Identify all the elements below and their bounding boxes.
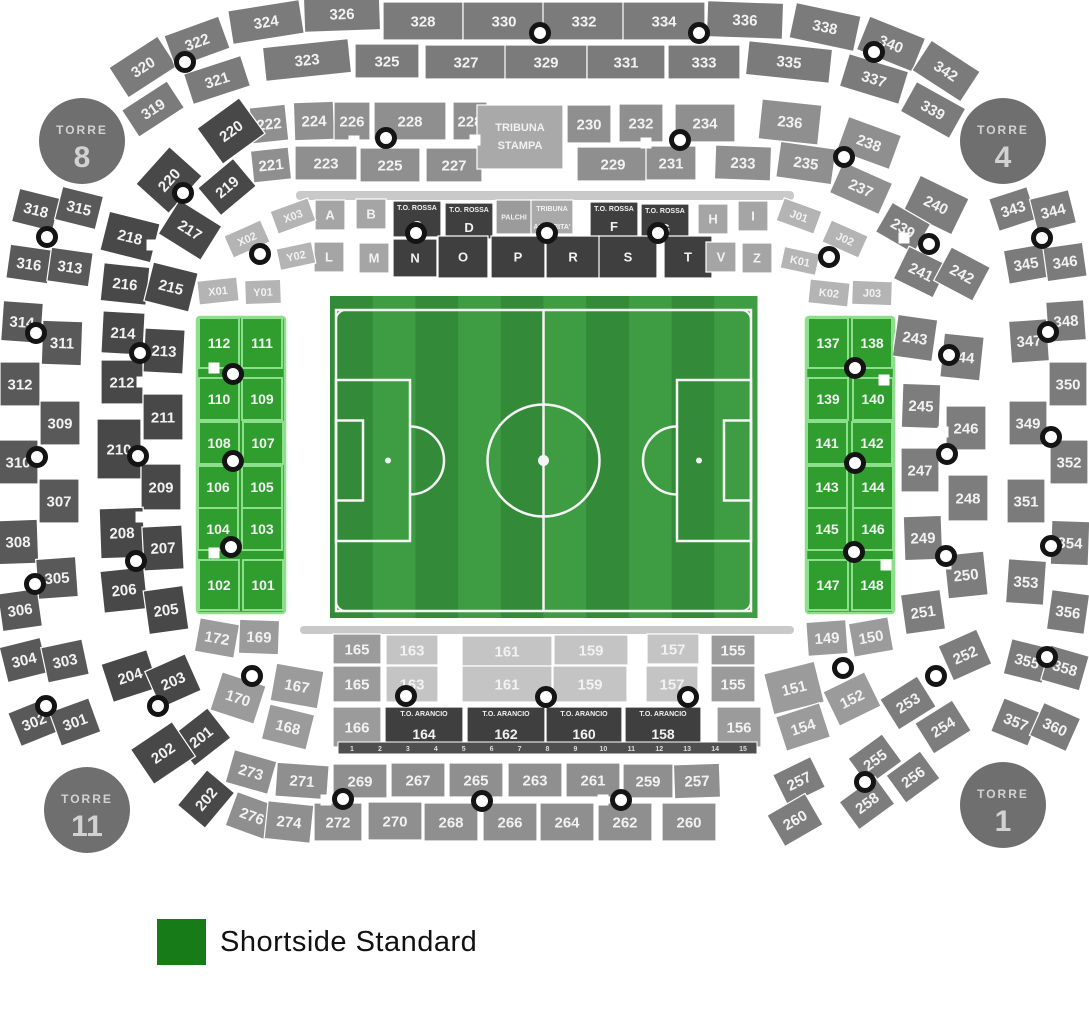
section-163: 163 [386, 635, 438, 665]
gate-marker-icon[interactable] [408, 225, 425, 242]
seatmap-page: 3203223243263283303323343363383403423193… [0, 0, 1089, 1032]
gate-marker-icon[interactable] [38, 698, 55, 715]
section-label: 257 [684, 773, 710, 791]
gate-marker-icon[interactable] [132, 345, 149, 362]
section-346: 346 [1043, 242, 1087, 281]
section-k02: K02 [808, 279, 850, 307]
section-264: 264 [540, 803, 594, 841]
seat-row-number: 6 [490, 746, 494, 753]
section-label: 105 [250, 479, 274, 495]
section-label: O [458, 250, 468, 265]
section-i: I [738, 201, 768, 231]
section-label: 148 [860, 577, 884, 593]
section-167: 167 [270, 663, 324, 709]
section-343: 343 [989, 187, 1038, 232]
section-label: 155 [720, 676, 745, 693]
section-label: 259 [635, 773, 660, 790]
legend: Shortside Standard [157, 919, 477, 965]
section-333: 333 [668, 45, 740, 79]
section-101[interactable]: 101 [243, 560, 283, 610]
section-label: 309 [47, 415, 72, 432]
torre-4: TORRE4 [960, 98, 1046, 184]
section-label: 248 [955, 490, 980, 507]
gate-icon [940, 290, 951, 301]
section-label: 225 [377, 157, 402, 174]
section-label: 346 [1052, 253, 1079, 273]
seat-row-number: 4 [434, 746, 438, 753]
section-304: 304 [0, 637, 49, 682]
gate-marker-icon[interactable] [150, 698, 167, 715]
section-label: 268 [438, 814, 463, 831]
legend-label: Shortside Standard [220, 926, 477, 959]
section-label: 306 [7, 601, 34, 621]
torre-number: 11 [71, 810, 103, 843]
section-j03: J03 [852, 280, 893, 305]
section-sublabel: T.O. ARANCIO [482, 711, 530, 718]
section-157: 157 [647, 634, 699, 664]
section-s: S [599, 236, 657, 278]
seat-row-number: 7 [518, 746, 522, 753]
section-label: 249 [910, 530, 936, 548]
section-label: 353 [1013, 573, 1039, 592]
gate-marker-icon[interactable] [921, 236, 938, 253]
gate-marker-icon[interactable] [128, 553, 145, 570]
gate-marker-icon[interactable] [821, 249, 838, 266]
gate-marker-icon[interactable] [650, 225, 667, 242]
section-332: 332 [543, 2, 625, 40]
section-206: 206 [100, 567, 148, 613]
walkway-band [300, 626, 794, 634]
gate-marker-icon[interactable] [252, 246, 269, 263]
section-label: 323 [294, 51, 321, 71]
gate-marker-icon[interactable] [1034, 230, 1051, 247]
seat-row-number: 5 [462, 746, 466, 753]
section-159: 159 [553, 666, 627, 702]
section-l: L [314, 242, 344, 272]
section-162: T.O. ARANCIO162 [467, 707, 545, 747]
gate-marker-icon[interactable] [847, 360, 864, 377]
section-label: 158 [651, 726, 675, 742]
section-266: 266 [483, 803, 537, 841]
section-sublabel: TRIBUNA [495, 122, 545, 134]
section-label: 103 [250, 521, 274, 537]
section-label: 108 [207, 435, 231, 451]
section-label: 205 [153, 601, 180, 621]
section-label: 233 [730, 155, 756, 173]
section-106[interactable]: 106 [198, 466, 238, 508]
section-label: 156 [726, 719, 751, 736]
section-315: 315 [55, 186, 104, 229]
gate-marker-icon[interactable] [398, 688, 415, 705]
section-label: 271 [289, 772, 315, 791]
section-155: 155 [711, 666, 755, 702]
section-326: 326 [303, 0, 380, 32]
section-147[interactable]: 147 [808, 560, 848, 610]
section-stampa: TRIBUNASTAMPA [477, 105, 563, 169]
section-219: 219 [198, 158, 256, 215]
section-b: B [356, 199, 386, 229]
section-344: 344 [1029, 190, 1076, 233]
section-224: 224 [293, 101, 334, 140]
section-139[interactable]: 139 [808, 378, 848, 420]
section-label: 149 [814, 629, 840, 648]
section-237: 237 [829, 161, 892, 214]
section-label: 209 [148, 479, 173, 496]
section-label: 250 [953, 566, 980, 586]
section-label: 307 [46, 493, 71, 510]
section-353: 353 [1006, 559, 1047, 606]
section-label: 144 [861, 479, 885, 495]
section-label: 163 [399, 642, 424, 659]
section-label: 138 [860, 335, 884, 351]
section-label: L [325, 250, 333, 265]
section-label: 274 [276, 813, 303, 833]
section-168: 168 [261, 704, 314, 750]
section-label: 234 [692, 115, 718, 132]
torre-word: TORRE [61, 792, 113, 806]
section-164: T.O. ARANCIO164 [385, 707, 463, 747]
section-label: 336 [732, 12, 758, 30]
gate-marker-icon[interactable] [691, 25, 708, 42]
seat-row-number: 9 [573, 746, 577, 753]
section-105[interactable]: 105 [242, 466, 282, 508]
section-327: 327 [425, 45, 507, 79]
section-label: R [568, 250, 578, 265]
section-label: 207 [150, 540, 176, 558]
section-z: Z [742, 243, 772, 273]
section-218: 218 [100, 211, 160, 262]
section-sublabel: T.O. ROSSA [645, 208, 685, 215]
section-label: 260 [676, 814, 701, 831]
torre-8: TORRE8 [39, 98, 125, 184]
section-label: 269 [347, 773, 372, 790]
section-143[interactable]: 143 [807, 466, 847, 508]
section-label: 137 [816, 335, 840, 351]
section-label: 212 [109, 374, 134, 391]
legend-swatch-shortside-standard [157, 919, 206, 965]
gate-marker-icon[interactable] [29, 449, 46, 466]
section-260: 260 [662, 803, 716, 841]
section-311: 311 [41, 320, 83, 365]
section-246: 246 [946, 406, 986, 450]
section-102[interactable]: 102 [199, 560, 239, 610]
section-label: 145 [815, 521, 839, 537]
seat-row-number: 12 [655, 746, 663, 753]
section-label: 214 [110, 325, 137, 343]
section-149: 149 [806, 620, 848, 657]
gate-icon [349, 136, 360, 147]
gate-marker-icon[interactable] [939, 446, 956, 463]
section-161: 161 [462, 636, 552, 666]
gate-marker-icon[interactable] [836, 149, 853, 166]
section-k01: K01 [780, 246, 820, 275]
gate-marker-icon[interactable] [28, 325, 45, 342]
stadium-map: 3203223243263283303323343363383403423193… [0, 0, 1089, 1032]
gate-marker-icon[interactable] [225, 366, 242, 383]
section-233: 233 [714, 145, 771, 181]
section-227: 227 [426, 148, 482, 182]
section-label: 261 [580, 772, 605, 789]
gate-marker-icon[interactable] [244, 668, 261, 685]
section-271: 271 [275, 762, 329, 800]
section-111[interactable]: 111 [242, 318, 282, 368]
section-312: 312 [0, 362, 40, 406]
section-label: 111 [251, 335, 273, 351]
section-165: 165 [333, 634, 381, 664]
gate-marker-icon[interactable] [539, 225, 556, 242]
gate-marker-icon[interactable] [27, 576, 44, 593]
section-261: 261 [566, 763, 620, 797]
section-335: 335 [745, 41, 832, 84]
section-label: PALCHI [501, 214, 527, 221]
section-label: 226 [339, 113, 364, 130]
section-268: 268 [424, 803, 478, 841]
section-label: 262 [612, 814, 637, 831]
section-label: 265 [463, 772, 488, 789]
gate-icon [147, 240, 158, 251]
section-label: 350 [1055, 376, 1080, 393]
section-215: 215 [144, 262, 198, 312]
section-label: 245 [908, 398, 934, 416]
gate-marker-icon[interactable] [1040, 324, 1057, 341]
section-label: M [369, 251, 380, 266]
section-sublabel: T.O. ROSSA [397, 205, 437, 212]
seat-row-number: 3 [406, 746, 410, 753]
gate-marker-icon[interactable] [532, 25, 549, 42]
gate-icon [881, 560, 892, 571]
gate-marker-icon[interactable] [680, 689, 697, 706]
gate-marker-icon[interactable] [938, 548, 955, 565]
section-palchi: PALCHI [496, 200, 532, 234]
section-label: 165 [344, 641, 369, 658]
gate-icon [899, 233, 910, 244]
section-360: 360 [1029, 702, 1080, 751]
section-label: 110 [208, 391, 231, 407]
section-r: R [546, 236, 600, 278]
section-label: 312 [7, 376, 32, 393]
torre-word: TORRE [977, 123, 1029, 137]
section-label: 331 [613, 54, 638, 71]
gate-icon [209, 363, 220, 374]
gate-marker-icon[interactable] [1043, 538, 1060, 555]
section-325: 325 [355, 44, 419, 78]
section-107[interactable]: 107 [243, 422, 283, 464]
section-t: T [664, 236, 712, 278]
section-328: 328 [383, 2, 463, 40]
section-h: H [698, 204, 728, 234]
gate-marker-icon[interactable] [1043, 429, 1060, 446]
section-216: 216 [100, 263, 150, 306]
section-label: Z [753, 251, 761, 266]
section-label: 267 [405, 772, 430, 789]
gate-icon [137, 377, 148, 388]
gate-marker-icon[interactable] [835, 660, 852, 677]
gate-marker-icon[interactable] [866, 44, 883, 61]
section-145[interactable]: 145 [807, 508, 847, 550]
section-label: 351 [1013, 493, 1038, 510]
gate-marker-icon[interactable] [928, 668, 945, 685]
section-label: 325 [374, 53, 399, 70]
section-label: 160 [572, 726, 596, 742]
seat-row-number: 8 [546, 746, 550, 753]
section-label: 333 [691, 54, 716, 71]
section-109[interactable]: 109 [242, 378, 282, 420]
section-274: 274 [264, 801, 314, 844]
section-label: 251 [910, 603, 937, 623]
section-247: 247 [901, 448, 939, 492]
section-label: 169 [246, 629, 272, 647]
gate-marker-icon[interactable] [335, 791, 352, 808]
torre-11: TORRE11 [44, 767, 130, 853]
section-232: 232 [619, 104, 663, 142]
gate-icon [136, 512, 147, 523]
section-103[interactable]: 103 [242, 508, 282, 550]
section-label: 221 [258, 156, 285, 176]
section-sublabel: TRIBUNA [536, 206, 568, 213]
pitch-center-spot [538, 455, 549, 466]
section-label: 231 [658, 155, 683, 172]
gate-marker-icon[interactable] [672, 132, 689, 149]
section-label: 211 [151, 409, 175, 426]
section-260: 260 [767, 793, 823, 846]
section-y01: Y01 [245, 279, 282, 304]
section-label: 230 [576, 116, 601, 133]
section-141[interactable]: 141 [807, 422, 847, 464]
gate-marker-icon[interactable] [130, 448, 147, 465]
section-n: N [393, 239, 437, 277]
section-label: 146 [861, 521, 885, 537]
gate-marker-icon[interactable] [177, 54, 194, 71]
section-220: 220 [136, 147, 202, 214]
section-248: 248 [948, 475, 988, 521]
gate-icon [938, 427, 949, 438]
section-label: 247 [907, 462, 932, 479]
section-307: 307 [39, 479, 79, 523]
section-label: H [708, 212, 717, 227]
section-166: 166 [333, 707, 381, 747]
section-label: 159 [577, 676, 602, 693]
gate-marker-icon[interactable] [613, 792, 630, 809]
pitch-stripe [544, 296, 587, 618]
section-226: 226 [334, 102, 370, 140]
section-label: A [325, 208, 335, 223]
section-label: 164 [412, 726, 436, 742]
gate-marker-icon[interactable] [378, 130, 395, 147]
section-label: 208 [109, 525, 135, 543]
section-sublabel: T.O. ARANCIO [560, 711, 608, 718]
gate-icon [321, 795, 332, 806]
section-label: 352 [1056, 454, 1081, 471]
section-172: 172 [194, 618, 239, 658]
gate-marker-icon[interactable] [846, 544, 863, 561]
section-150: 150 [848, 617, 893, 657]
penalty-spot-left [385, 458, 391, 464]
section-159: 159 [554, 635, 628, 665]
section-label: 227 [441, 157, 466, 174]
section-316: 316 [6, 244, 52, 284]
section-303: 303 [41, 639, 90, 683]
section-sublabel: T.O. ROSSA [449, 207, 489, 214]
section-331: 331 [587, 45, 665, 79]
section-label: 305 [44, 569, 70, 588]
pitch-stripe [501, 296, 544, 618]
section-label: 332 [571, 13, 596, 30]
section-label: X01 [208, 285, 229, 299]
section-label: 329 [533, 54, 558, 71]
gate-marker-icon[interactable] [175, 185, 192, 202]
section-155: 155 [711, 635, 755, 665]
seat-row-number: 10 [599, 746, 607, 753]
section-p: P [491, 236, 545, 278]
pitch [330, 296, 758, 618]
section-label: 235 [792, 154, 819, 174]
section-label: 101 [251, 577, 275, 593]
gate-marker-icon[interactable] [538, 689, 555, 706]
section-label: 142 [860, 435, 884, 451]
section-label: I [751, 209, 755, 224]
section-a: A [315, 200, 345, 230]
section-label: 102 [207, 577, 231, 593]
gate-marker-icon[interactable] [225, 453, 242, 470]
section-label: 224 [301, 113, 327, 131]
pitch-stripe [415, 296, 458, 618]
section-label: 213 [151, 343, 177, 361]
section-label: 107 [251, 435, 275, 451]
gate-marker-icon[interactable] [39, 229, 56, 246]
torre-number: 8 [74, 141, 91, 174]
torre-1: TORRE1 [960, 762, 1046, 848]
section-label: 266 [497, 814, 522, 831]
section-351: 351 [1007, 479, 1045, 523]
section-label: STAMPA [498, 140, 543, 152]
section-label: 157 [660, 641, 685, 658]
seat-row-number: 2 [378, 746, 382, 753]
section-o: O [438, 236, 488, 278]
section-y02: Y02 [276, 241, 316, 270]
section-225: 225 [360, 148, 420, 182]
section-324: 324 [228, 0, 304, 44]
section-label: 356 [1054, 603, 1081, 623]
section-221: 221 [250, 147, 291, 183]
section-267: 267 [391, 763, 445, 797]
gate-marker-icon[interactable] [223, 539, 240, 556]
section-label: 155 [720, 642, 745, 659]
section-112[interactable]: 112 [199, 318, 239, 368]
section-label: 166 [344, 719, 369, 736]
section-label: 330 [491, 13, 516, 30]
section-137[interactable]: 137 [808, 318, 848, 368]
gate-marker-icon[interactable] [857, 774, 874, 791]
gate-icon [737, 795, 748, 806]
section-156: 156 [717, 707, 761, 747]
section-label: 232 [628, 115, 653, 132]
section-label: 162 [494, 726, 518, 742]
section-label: V [717, 250, 726, 265]
pitch-stripe [629, 296, 672, 618]
seat-row-number: 15 [739, 746, 747, 753]
section-209: 209 [141, 464, 181, 510]
section-label: 147 [816, 577, 840, 593]
gate-marker-icon[interactable] [474, 793, 491, 810]
gate-marker-icon[interactable] [941, 347, 958, 364]
section-235: 235 [776, 141, 836, 184]
section-229: 229 [577, 147, 649, 181]
section-label: 228 [397, 113, 422, 130]
section-160: T.O. ARANCIO160 [546, 707, 622, 747]
gate-marker-icon[interactable] [847, 455, 864, 472]
section-label: 109 [250, 391, 274, 407]
gate-marker-icon[interactable] [1039, 649, 1056, 666]
